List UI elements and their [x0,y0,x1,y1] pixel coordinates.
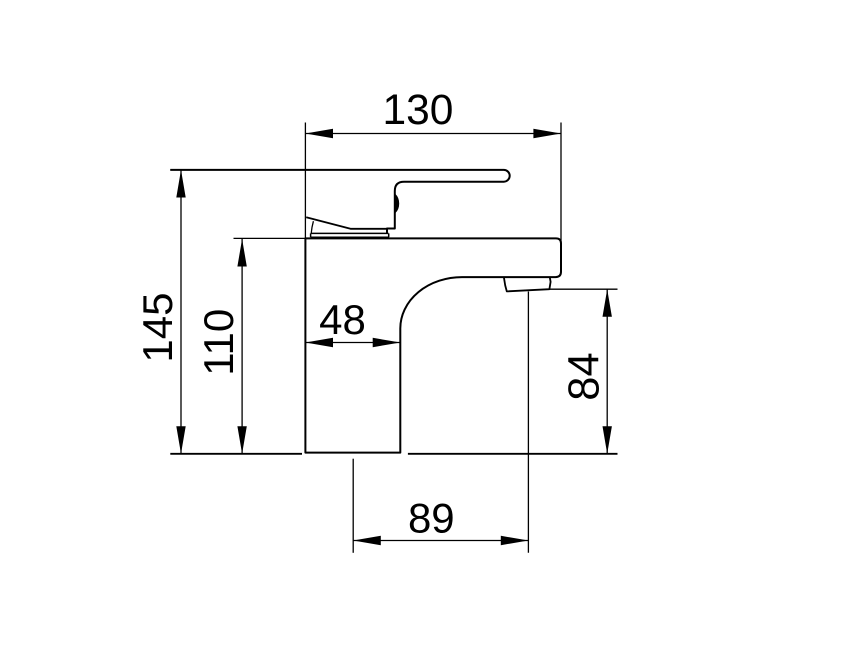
svg-text:110: 110 [195,309,242,376]
svg-text:48: 48 [319,296,366,343]
svg-text:130: 130 [383,87,454,134]
svg-text:145: 145 [134,293,181,363]
svg-text:84: 84 [561,352,609,400]
svg-text:89: 89 [408,495,455,542]
